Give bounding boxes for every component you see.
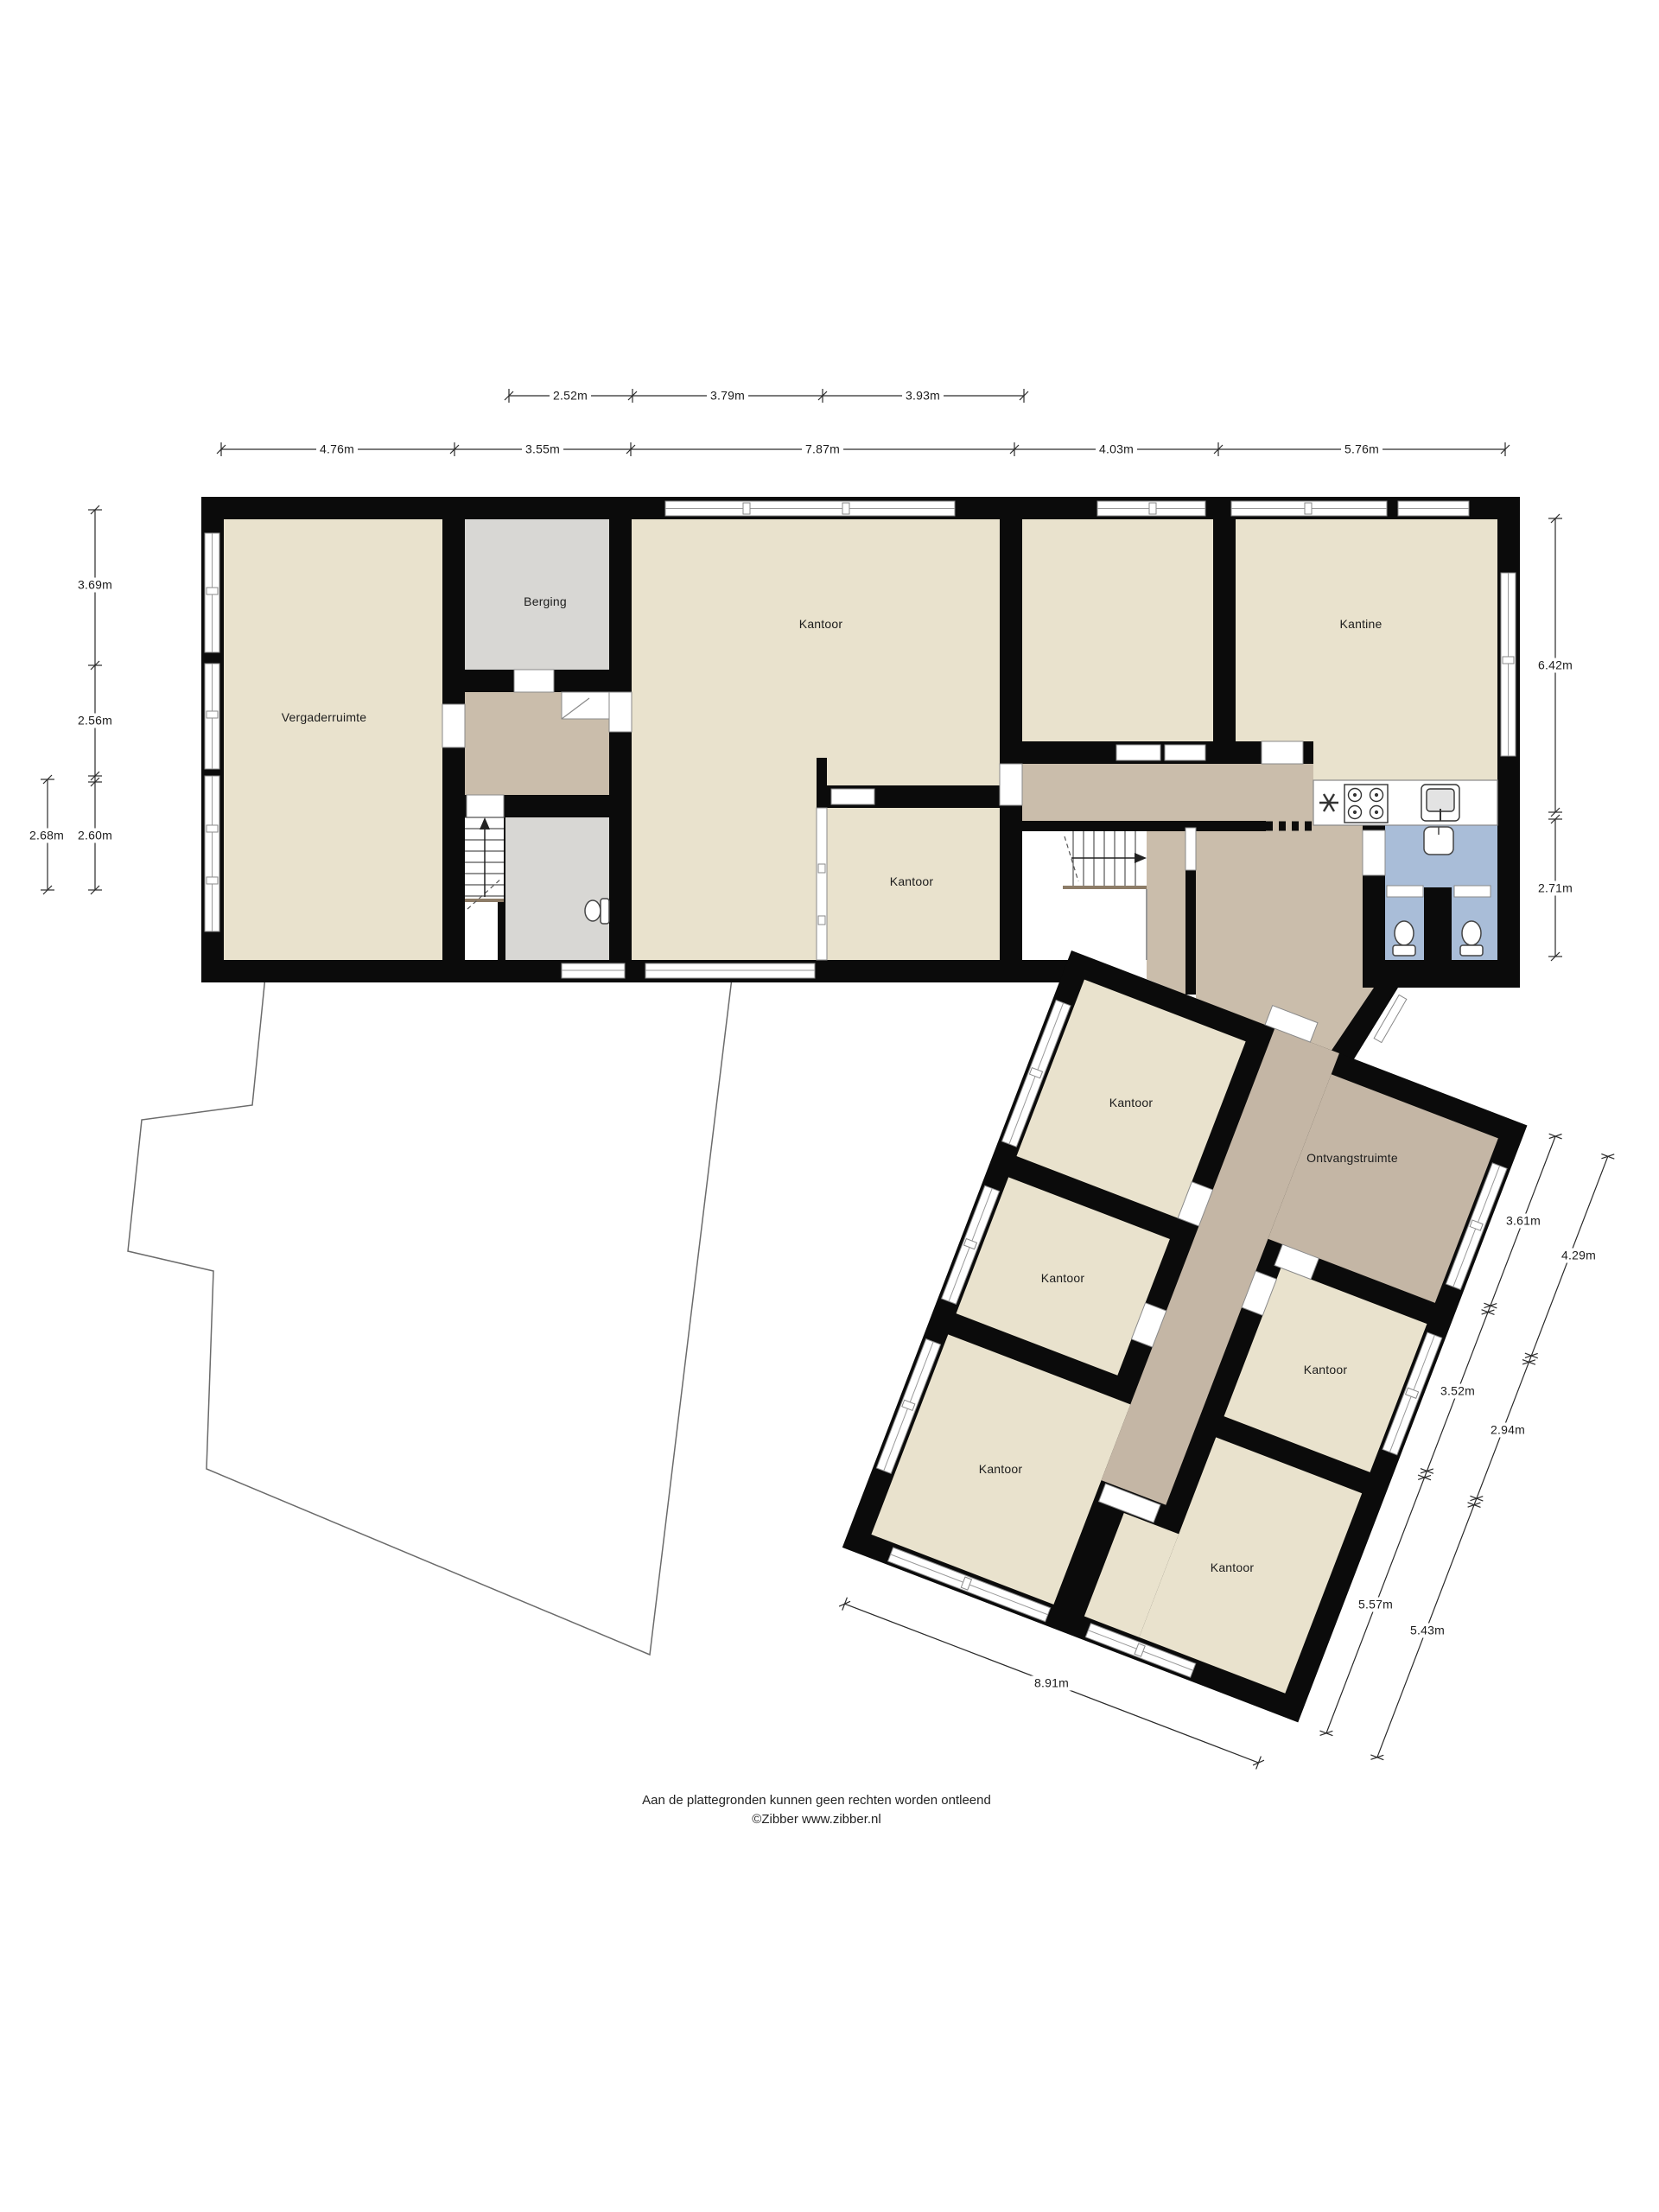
dim-top-inner-1: 2.52m	[550, 389, 591, 404]
door-vergaderruimte	[442, 704, 465, 747]
room-label-kantoor-groot: Kantoor	[799, 617, 842, 631]
dim-left-3: 2.60m	[74, 829, 116, 843]
kitchen	[1313, 780, 1497, 825]
washbasin-icon	[1424, 827, 1453, 855]
dim-right-2: 2.71m	[1535, 881, 1576, 896]
staircase-main	[465, 817, 504, 909]
door-wc-stall-left	[1387, 886, 1423, 897]
door-berging	[514, 670, 554, 692]
annex-building	[821, 931, 1621, 1811]
toilet-icon	[585, 899, 609, 924]
door-corridor-west	[1000, 764, 1022, 805]
dim-top-inner-2: 3.79m	[707, 389, 748, 404]
room-label-vergaderruimte: Vergaderruimte	[282, 710, 367, 724]
wc-room-floor	[505, 817, 609, 960]
glass-partition	[817, 808, 827, 960]
dim-annex-inner-3: 5.57m	[1355, 1598, 1396, 1612]
dim-top-outer-4: 4.03m	[1096, 442, 1137, 457]
kitchen-counter	[1313, 780, 1497, 825]
floorplan-drawing	[0, 0, 1659, 2212]
dim-top-outer-1: 4.76m	[316, 442, 358, 457]
room-label-kantoor-oost: Kantoor	[1304, 1363, 1347, 1376]
entry-taupe-strip	[1147, 831, 1185, 995]
closet	[562, 692, 609, 719]
toilet-icon	[1460, 921, 1483, 956]
dim-annex-outer-1: 4.29m	[1558, 1249, 1599, 1263]
footer-copyright: ©Zibber www.zibber.nl	[752, 1812, 880, 1827]
footer-disclaimer: Aan de plattegronden kunnen geen rechten…	[642, 1793, 991, 1808]
room-label-berging: Berging	[524, 594, 567, 608]
dim-annex-bottom: 8.91m	[1031, 1676, 1072, 1691]
room-label-kantoor-zuidwest: Kantoor	[979, 1462, 1022, 1476]
door-hall-kantoor	[609, 692, 632, 732]
floorplan-page: Vergaderruimte Berging Kantoor Kantine K…	[0, 0, 1659, 2212]
door-corridor-kantine	[1262, 741, 1303, 764]
room-label-kantine: Kantine	[1340, 617, 1382, 631]
door-entry-glass	[1185, 828, 1196, 870]
stove-icon	[1344, 785, 1388, 823]
dim-left-2: 2.56m	[74, 714, 116, 728]
dim-top-outer-2: 3.55m	[522, 442, 563, 457]
sink-icon	[1421, 785, 1459, 821]
dim-right-1: 6.42m	[1535, 658, 1576, 673]
dim-annex-outer-2: 2.94m	[1487, 1423, 1529, 1438]
door-wc-stall-right	[1454, 886, 1491, 897]
room-label-ontvangstruimte: Ontvangstruimte	[1306, 1151, 1398, 1165]
corridor-floor	[1022, 764, 1313, 821]
dim-left-1: 3.69m	[74, 578, 116, 593]
door-stairwell	[467, 795, 504, 817]
room-label-kantoor-west: Kantoor	[1041, 1271, 1084, 1285]
toilet-icon	[1393, 921, 1415, 956]
room-label-kantoor-noord: Kantoor	[1109, 1096, 1153, 1109]
dim-top-inner-3: 3.93m	[902, 389, 944, 404]
dim-annex-inner-2: 3.52m	[1437, 1384, 1478, 1399]
terrain-outline	[128, 976, 732, 1655]
room-label-kantoor-klein: Kantoor	[890, 874, 933, 888]
dim-top-outer-5: 5.76m	[1341, 442, 1382, 457]
dim-left-outer: 2.68m	[26, 829, 67, 843]
dim-annex-outer-3: 5.43m	[1407, 1624, 1448, 1638]
door-bathroom	[1363, 830, 1385, 875]
room-label-kantoor-zuid: Kantoor	[1211, 1560, 1254, 1574]
dim-annex-inner-1: 3.61m	[1503, 1214, 1544, 1229]
dim-top-outer-3: 7.87m	[802, 442, 843, 457]
